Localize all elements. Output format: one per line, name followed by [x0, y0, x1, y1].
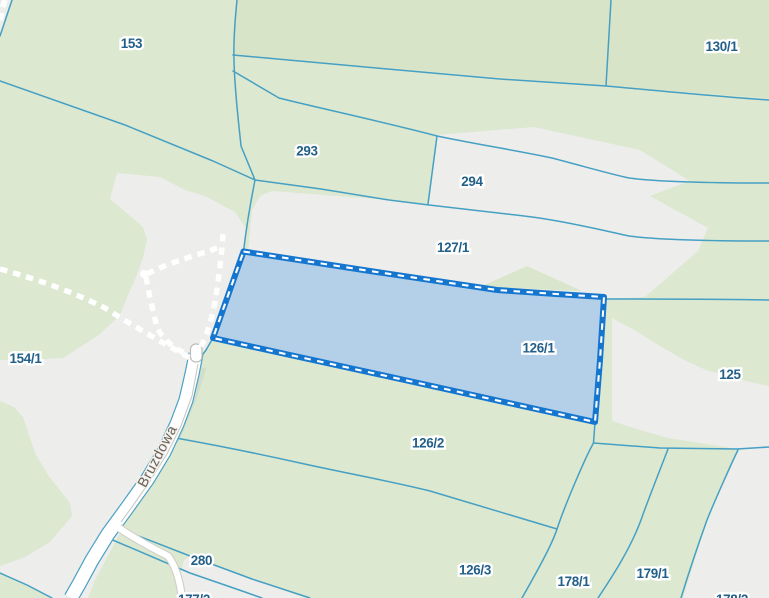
svg-text:178/2: 178/2 — [716, 592, 748, 598]
svg-text:126/1: 126/1 — [522, 341, 555, 356]
svg-text:294: 294 — [461, 174, 483, 189]
svg-text:293: 293 — [296, 144, 317, 159]
svg-text:126/3: 126/3 — [459, 563, 491, 578]
svg-text:280: 280 — [191, 553, 212, 568]
svg-text:126/2: 126/2 — [412, 436, 444, 451]
svg-text:127/1: 127/1 — [437, 240, 470, 255]
svg-text:153: 153 — [121, 36, 142, 51]
svg-text:177/2: 177/2 — [178, 592, 210, 598]
svg-text:154/1: 154/1 — [9, 351, 42, 366]
svg-text:178/1: 178/1 — [557, 574, 590, 589]
svg-text:130/1: 130/1 — [705, 39, 738, 54]
svg-text:179/1: 179/1 — [636, 566, 669, 581]
svg-text:125: 125 — [719, 367, 741, 382]
